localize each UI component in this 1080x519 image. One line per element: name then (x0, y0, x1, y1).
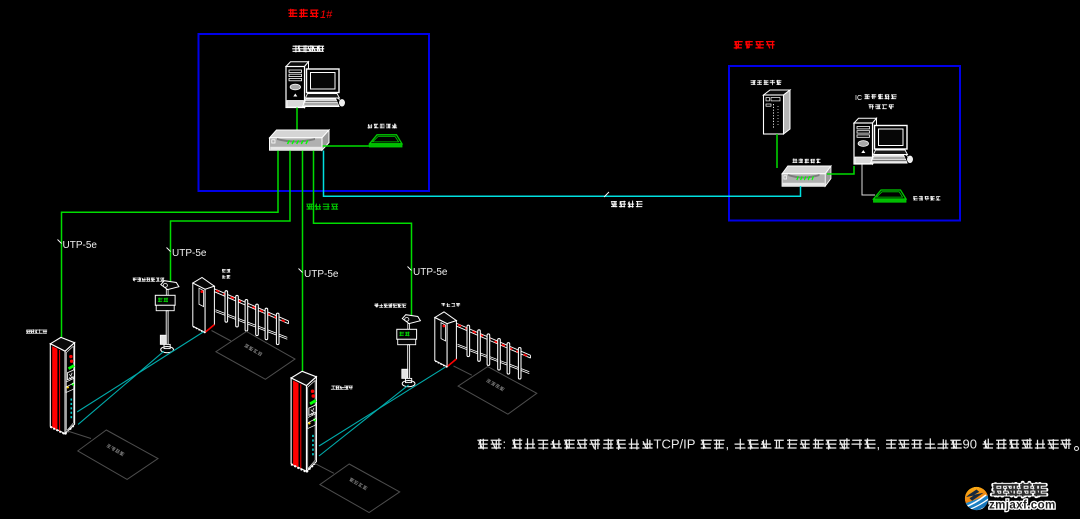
svg-text:90: 90 (963, 437, 977, 452)
svg-text:UTP-5e: UTP-5e (304, 269, 339, 280)
svg-text:zmjaxf.com: zmjaxf.com (989, 500, 1056, 512)
svg-text:IC: IC (855, 95, 862, 102)
svg-text:UTP-5e: UTP-5e (413, 267, 448, 278)
svg-text:,: , (877, 437, 881, 452)
svg-text:1#: 1# (320, 9, 333, 21)
svg-text:UTP-5e: UTP-5e (172, 248, 207, 259)
svg-text::: : (503, 437, 507, 452)
svg-text:,: , (726, 437, 730, 452)
svg-text:UTP-5e: UTP-5e (63, 240, 98, 251)
svg-text:TCP/IP: TCP/IP (654, 437, 696, 452)
